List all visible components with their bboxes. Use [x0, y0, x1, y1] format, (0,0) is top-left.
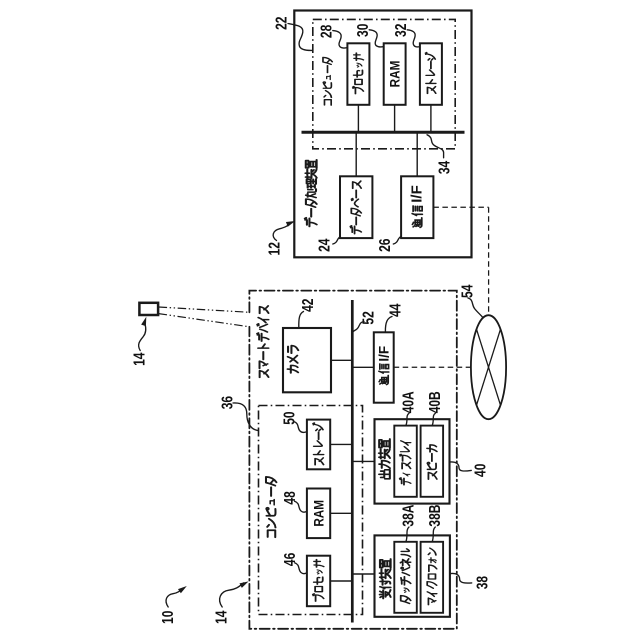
svg-text:I/F: I/F [409, 185, 426, 203]
svg-text:10: 10 [158, 610, 176, 624]
svg-text:34: 34 [435, 161, 453, 175]
svg-text:42: 42 [298, 298, 316, 312]
svg-text:28: 28 [317, 24, 335, 38]
svg-text:RAM: RAM [310, 500, 326, 527]
svg-text:44: 44 [386, 303, 404, 317]
svg-text:14: 14 [130, 352, 148, 366]
svg-text:RAM: RAM [387, 61, 403, 88]
svg-text:12: 12 [265, 242, 283, 256]
svg-text:38: 38 [473, 576, 491, 590]
svg-text:24: 24 [315, 238, 333, 252]
svg-text:40: 40 [471, 463, 489, 477]
svg-text:22: 22 [272, 16, 290, 30]
svg-text:54: 54 [458, 284, 476, 298]
svg-text:38B: 38B [426, 505, 444, 527]
svg-text:38A: 38A [399, 505, 417, 527]
svg-text:14: 14 [212, 610, 230, 624]
svg-text:I/F: I/F [376, 346, 391, 362]
svg-text:40A: 40A [399, 391, 417, 413]
svg-text:26: 26 [375, 238, 393, 252]
svg-text:40B: 40B [426, 391, 444, 413]
